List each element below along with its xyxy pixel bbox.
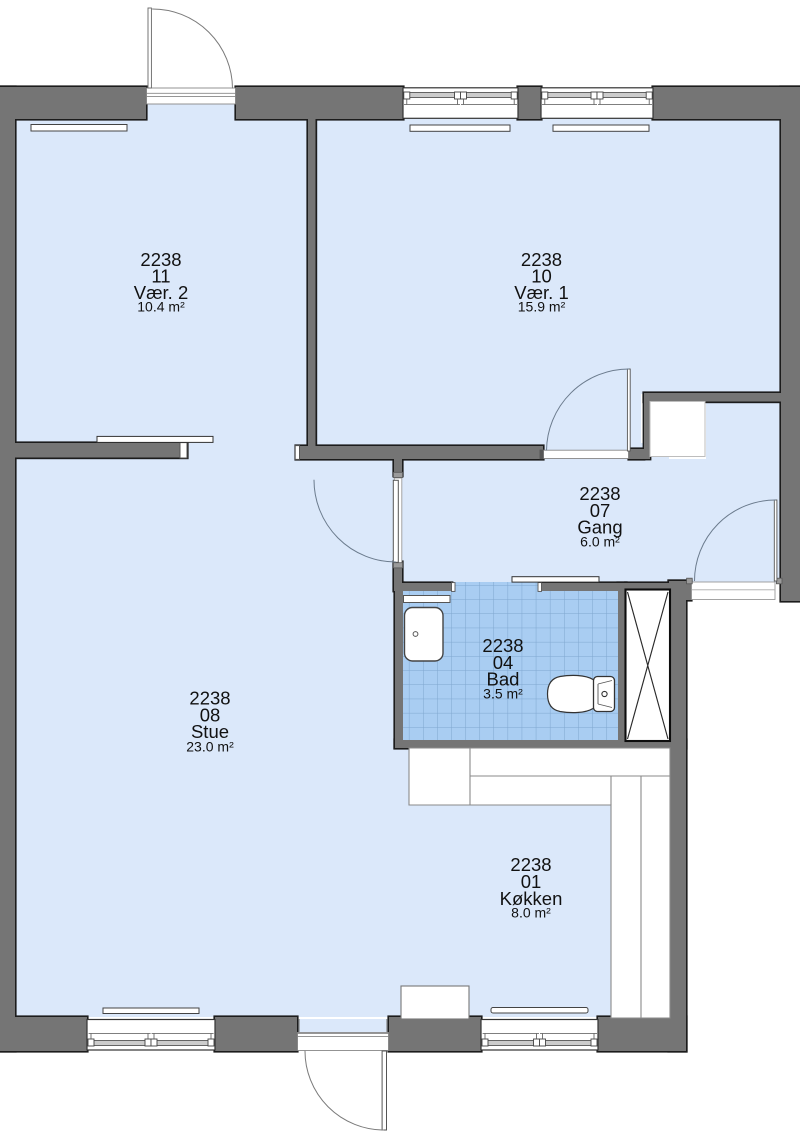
svg-text:15.9 m²: 15.9 m² xyxy=(518,299,566,315)
svg-text:10.4 m²: 10.4 m² xyxy=(137,299,185,315)
svg-text:3.5 m²: 3.5 m² xyxy=(483,686,523,702)
svg-text:23.0 m²: 23.0 m² xyxy=(186,739,234,755)
svg-text:8.0 m²: 8.0 m² xyxy=(511,905,551,921)
svg-text:6.0 m²: 6.0 m² xyxy=(580,534,620,550)
